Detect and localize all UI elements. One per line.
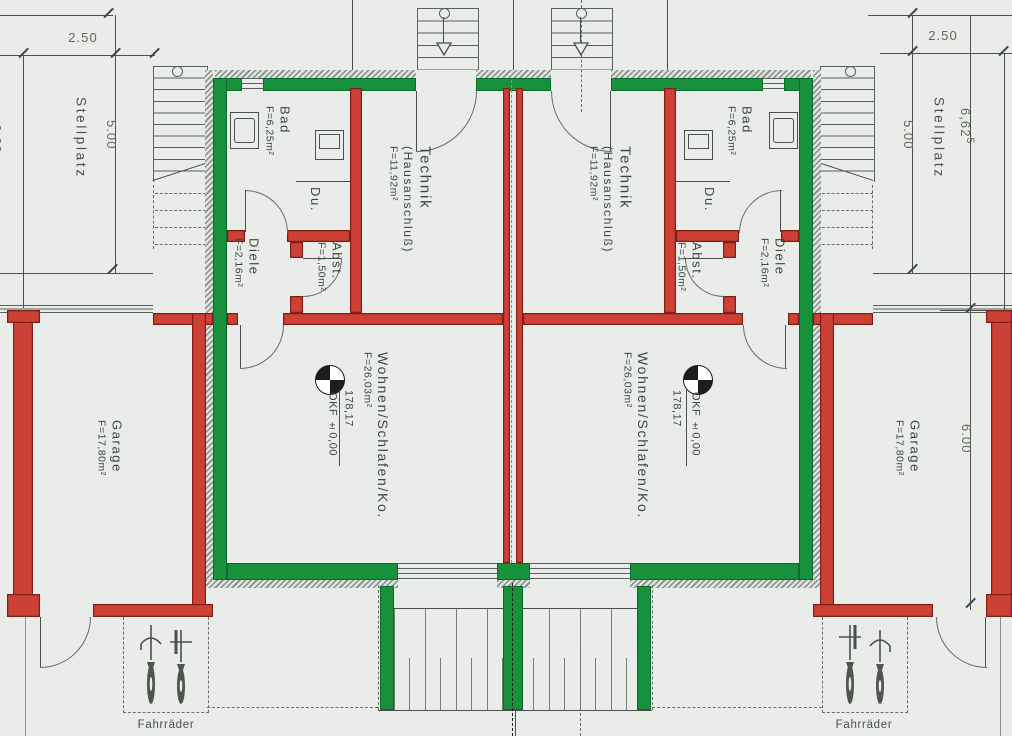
dim-side-depth-value: 6,62 <box>958 108 973 137</box>
room-name: Abst. <box>688 242 705 291</box>
bike-storage-box-right <box>822 617 908 713</box>
party-axis-extension <box>515 710 516 736</box>
stair-hidden-edge <box>153 185 155 249</box>
label-stellplatz-left: Stellplatz <box>72 97 90 179</box>
dim-side-depth-sup: 5 <box>964 137 976 144</box>
room-label-technik-right: Technik (Hausanschluß) F=11,92m² <box>586 146 635 253</box>
dim-side-depth: 6,625 <box>956 108 977 145</box>
room-area: F=26,03m² <box>620 352 634 519</box>
garage-wall-pier <box>7 594 40 617</box>
grid-line <box>352 0 353 74</box>
bicycle-icon <box>867 628 893 706</box>
stair-hidden-tread <box>155 193 206 194</box>
wc-cistern-icon <box>319 134 340 149</box>
terrace-boundary <box>652 585 654 710</box>
window-bad-left <box>242 78 263 91</box>
room-name: Technik <box>415 146 435 253</box>
bike-storage-box-left <box>123 617 209 713</box>
bicycle-icon <box>138 622 164 706</box>
room-name: Du. <box>700 187 717 212</box>
room-name: Diele <box>771 238 788 287</box>
boundary-line <box>1000 617 1001 736</box>
room-name: Garage <box>108 420 125 476</box>
bicycle-icon <box>168 628 194 706</box>
label-fahrraeder-left: Fahrräder <box>120 719 212 731</box>
exterior-wall-right <box>799 78 813 580</box>
room-area: F=26,03m² <box>360 352 374 519</box>
room-label-abst-left: Abst. F=1,50m² <box>314 242 345 291</box>
dim-stellplatz-length-right: 5.00 <box>899 120 916 149</box>
room-area: F=6,25m² <box>724 106 738 155</box>
shower-partition <box>676 181 730 182</box>
room-name: Abst. <box>328 242 345 291</box>
dim-line <box>23 55 24 308</box>
door-leaf <box>240 325 241 368</box>
dim-tick <box>103 8 113 18</box>
room-name: Du. <box>306 187 323 212</box>
dim-stellplatz-width-right: 2.50 <box>908 28 978 43</box>
stair-hidden-tread <box>155 210 206 211</box>
exterior-wall-bottom <box>497 563 530 580</box>
entrance-door-arc-left <box>416 91 477 152</box>
room-area: F=11,92m² <box>586 146 600 253</box>
washbasin-bowl-icon <box>234 118 255 143</box>
interior-wall <box>283 313 503 325</box>
wall-insulation-bottom <box>205 580 398 588</box>
room-label-abst-right: Abst. F=1,50m² <box>674 242 705 291</box>
door-leaf <box>780 190 781 232</box>
garage-wall <box>991 310 1012 617</box>
party-wall <box>503 88 510 563</box>
garage-wall-pier <box>986 310 1012 323</box>
door-leaf <box>40 617 41 667</box>
room-name: Wohnen/Schlafen/Ko. <box>634 352 652 519</box>
room-name: Diele <box>245 238 262 287</box>
interior-wall <box>523 313 743 325</box>
wohnen-door-arc-right <box>743 325 787 369</box>
wall-insulation-top <box>476 70 551 78</box>
room-area: F=1,50m² <box>674 242 688 291</box>
stair-hidden-tread <box>822 244 873 245</box>
dim-clipped-left: 6,62 <box>0 124 4 153</box>
room-area: F=17,80m² <box>892 420 906 476</box>
dim-garage-depth: 6.00 <box>957 424 974 453</box>
boundary-line <box>25 617 26 736</box>
terrace-decking-short <box>409 658 637 710</box>
dim-line <box>0 15 113 16</box>
party-axis-terrace <box>512 583 514 736</box>
room-label-technik-left: Technik (Hausanschluß) F=11,92m² <box>386 146 435 253</box>
room-name: Technik <box>615 146 635 253</box>
exterior-wall-left <box>213 78 227 580</box>
room-area: F=2,16m² <box>757 238 771 287</box>
wall-insulation-bottom <box>630 580 821 588</box>
room-area: F=17,80m² <box>94 420 108 476</box>
stair-down-arrow-icon <box>572 41 590 57</box>
door-leaf <box>245 190 246 232</box>
interior-wall <box>723 242 736 258</box>
exterior-wall-top <box>611 78 763 91</box>
garage-wall <box>820 313 834 617</box>
bad-door-arc-right <box>739 190 782 233</box>
dim-line <box>868 15 1012 16</box>
window-bad-right <box>763 78 784 91</box>
section-dashed-line <box>580 648 582 736</box>
room-subname: (Hausanschluß) <box>400 146 416 253</box>
stair-direction-line <box>443 17 444 43</box>
level-okf-left: OKF ±0,00 <box>325 392 339 456</box>
interior-wall <box>788 313 799 325</box>
door-leaf <box>610 91 611 151</box>
dim-stellplatz-length: 5.00 <box>102 120 119 149</box>
level-okf-right: OKF ±0,00 <box>688 392 702 456</box>
garage-door-arc-right <box>936 617 987 668</box>
room-label-dusche-right: Du. <box>700 187 717 212</box>
terrace-window-left-unit <box>398 563 497 580</box>
interior-wall <box>676 230 739 242</box>
party-wall-axis <box>511 80 513 563</box>
shower-partition <box>296 181 350 182</box>
room-label-garage-left: Garage F=17,80m² <box>94 420 125 476</box>
stair-hidden-tread <box>822 193 873 194</box>
level-height-left: 178,17 <box>341 390 355 427</box>
garage-wall <box>192 313 206 617</box>
garage-wall-pier <box>7 310 40 323</box>
boundary-dashed <box>652 707 822 708</box>
terrace-post <box>637 586 651 710</box>
terrace-post <box>380 586 394 710</box>
room-area: F=11,92m² <box>386 146 400 253</box>
exterior-wall-bottom <box>630 563 799 580</box>
bad-door-arc-left <box>245 190 288 233</box>
room-subname: (Hausanschluß) <box>600 146 616 253</box>
grid-line <box>667 0 668 74</box>
room-name: Garage <box>906 420 923 476</box>
stair-down-arrow-icon <box>435 41 453 57</box>
stair-hidden-tread <box>155 244 206 245</box>
room-label-bad-left: Bad F=6,25m² <box>262 106 293 155</box>
floor-plan: 2.50 Stellplatz 5.00 6,62 2.50 Stellplat… <box>0 0 1012 736</box>
stair-hidden-tread <box>822 227 873 228</box>
interior-wall <box>723 296 736 313</box>
garage-wall <box>813 604 933 617</box>
level-marker-icon <box>683 365 713 395</box>
label-fahrraeder-right: Fahrräder <box>818 719 910 731</box>
washbasin-bowl-icon <box>773 118 794 143</box>
label-stellplatz-right: Stellplatz <box>930 97 948 179</box>
room-area: F=6,25m² <box>262 106 276 155</box>
door-leaf <box>985 617 986 667</box>
room-label-diele-right: Diele F=2,16m² <box>757 238 788 287</box>
room-label-diele-left: Diele F=2,16m² <box>231 238 262 287</box>
wall-insulation-left <box>205 70 213 588</box>
room-area: F=1,50m² <box>314 242 328 291</box>
exterior-wall-top <box>476 78 551 91</box>
entrance-door-arc-right <box>551 91 612 152</box>
level-leader-line <box>686 390 687 466</box>
exterior-wall-bottom <box>227 563 398 580</box>
wall-insulation-top <box>215 70 416 78</box>
interior-wall <box>290 242 303 258</box>
garage-wall <box>13 310 33 617</box>
room-label-wohnen-right: Wohnen/Schlafen/Ko. F=26,03m² <box>620 352 652 519</box>
dim-line <box>873 273 1012 274</box>
dim-tick <box>149 48 159 58</box>
stair-start-marker <box>576 8 587 19</box>
room-label-wohnen-left: Wohnen/Schlafen/Ko. F=26,03m² <box>360 352 392 519</box>
interior-wall <box>227 313 238 325</box>
room-label-bad-right: Bad F=6,25m² <box>724 106 755 155</box>
room-name: Wohnen/Schlafen/Ko. <box>374 352 392 519</box>
stair-start-marker <box>172 66 183 77</box>
door-leaf <box>785 325 786 368</box>
wohnen-door-arc-left <box>240 325 284 369</box>
level-height-right: 178,17 <box>669 390 683 427</box>
exterior-wall-top <box>263 78 416 91</box>
room-label-garage-right: Garage F=17,80m² <box>892 420 923 476</box>
wall-insulation-top <box>611 70 811 78</box>
garage-wall <box>93 604 213 617</box>
interior-wall <box>290 296 303 313</box>
room-name: Bad <box>738 106 755 155</box>
dim-line <box>880 53 1012 54</box>
room-label-dusche-left: Du. <box>306 187 323 212</box>
terrace-window-right-unit <box>530 563 630 580</box>
stair-start-marker <box>439 8 450 19</box>
dim-line <box>1004 53 1005 310</box>
door-leaf <box>416 91 417 151</box>
room-area: F=2,16m² <box>231 238 245 287</box>
terrace-boundary <box>378 585 380 710</box>
party-wall <box>516 88 523 563</box>
stair-hidden-tread <box>155 227 206 228</box>
stair-hidden-edge <box>872 185 874 249</box>
wc-cistern-icon <box>688 134 709 149</box>
garage-wall-pier <box>986 594 1012 617</box>
interior-wall <box>287 230 350 242</box>
dim-line <box>0 273 153 274</box>
stair-start-marker <box>845 66 856 77</box>
interior-wall <box>350 88 362 313</box>
dim-stellplatz-width: 2.50 <box>48 30 118 45</box>
stair-hidden-tread <box>822 210 873 211</box>
boundary-dashed <box>207 707 378 708</box>
garage-door-arc-left <box>40 617 91 668</box>
room-name: Bad <box>276 106 293 155</box>
bicycle-icon <box>837 622 863 706</box>
stair-direction-line <box>580 17 581 43</box>
